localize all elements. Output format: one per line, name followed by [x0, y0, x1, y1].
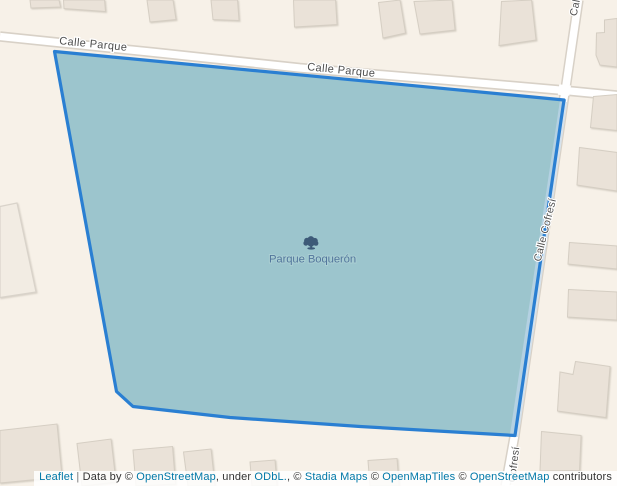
svg-text:Parque Boquerón: Parque Boquerón	[269, 253, 356, 265]
